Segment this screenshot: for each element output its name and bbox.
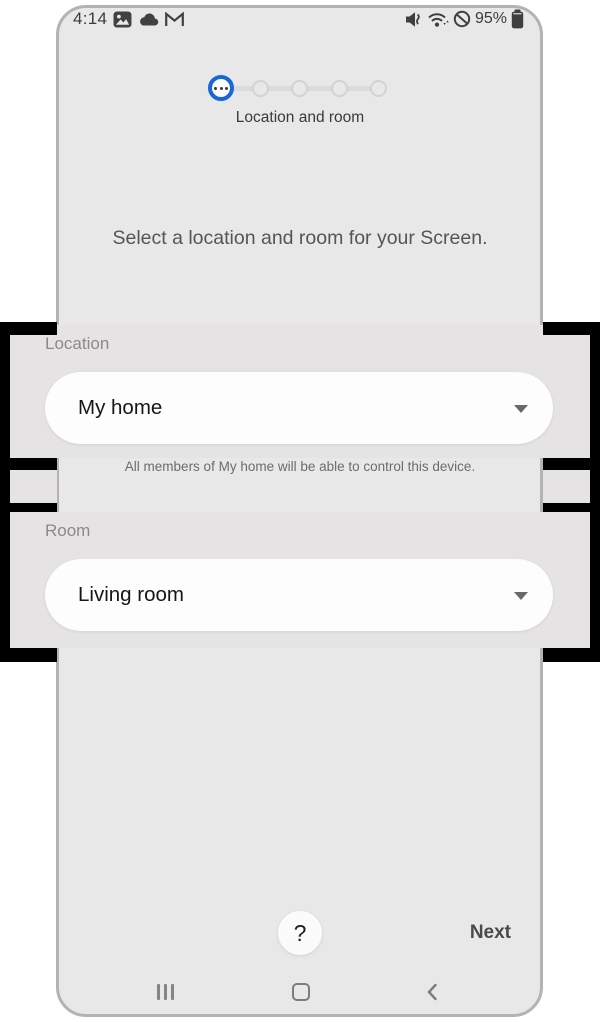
battery-icon	[511, 9, 524, 29]
status-bar-left: 4:14	[73, 9, 184, 29]
highlight-bracket-right-2	[543, 503, 600, 662]
help-button[interactable]: ?	[278, 911, 322, 955]
phone-frame	[56, 5, 543, 1017]
stepper-step-3	[291, 80, 308, 97]
next-button[interactable]: Next	[470, 922, 511, 944]
highlight-connector-right	[543, 470, 600, 503]
chevron-down-icon	[514, 405, 528, 413]
blocked-icon	[453, 10, 471, 28]
help-button-label: ?	[294, 920, 307, 947]
back-icon[interactable]	[426, 983, 438, 1001]
annotated-screenshot: 4:14 95%	[0, 0, 600, 1022]
chevron-down-icon	[514, 592, 528, 600]
wifi-icon	[427, 10, 449, 28]
location-value: My home	[78, 396, 162, 420]
clock: 4:14	[73, 9, 107, 29]
highlight-connector-left	[0, 470, 57, 503]
stepper-step-1-active	[208, 75, 234, 101]
room-value: Living room	[78, 583, 184, 607]
location-label: Location	[45, 334, 109, 354]
recents-icon[interactable]	[157, 984, 174, 1000]
room-dropdown[interactable]: Living room	[45, 559, 553, 631]
battery-percent: 95%	[475, 10, 507, 28]
step-label: Location and room	[0, 109, 600, 127]
cloud-icon	[138, 12, 159, 26]
location-helper-text: All members of My home will be able to c…	[70, 459, 530, 474]
home-icon[interactable]	[292, 983, 310, 1001]
room-label: Room	[45, 521, 90, 541]
instruction-text: Select a location and room for your Scre…	[70, 227, 530, 250]
photo-icon	[113, 11, 132, 28]
stepper-step-4	[331, 80, 348, 97]
highlight-bracket-right-1	[543, 322, 600, 470]
stepper-step-2	[252, 80, 269, 97]
gmail-icon	[165, 12, 184, 27]
status-bar-right: 95%	[405, 9, 524, 29]
mute-icon	[405, 11, 423, 28]
location-dropdown[interactable]: My home	[45, 372, 553, 444]
stepper-step-5	[370, 80, 387, 97]
